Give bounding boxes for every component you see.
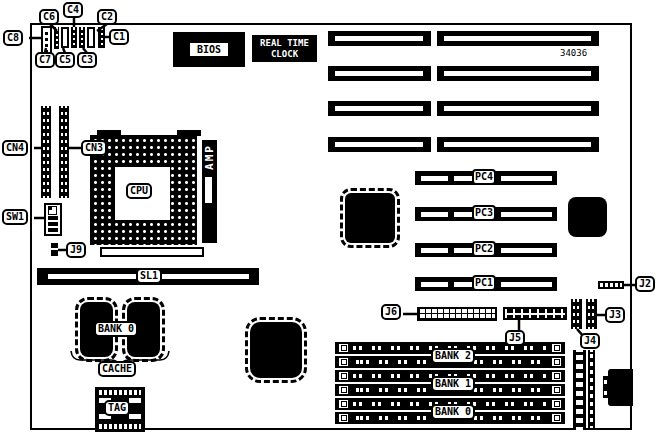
isa-slot xyxy=(328,137,431,152)
tag-pin-row xyxy=(99,424,141,429)
c5-label: C5 xyxy=(55,52,75,68)
pci-slot-key xyxy=(421,248,448,253)
j6-pins xyxy=(419,309,495,319)
pci-slot-key xyxy=(501,282,552,287)
simm-clip xyxy=(552,386,561,394)
c8-label: C8 xyxy=(3,30,23,46)
j5-label: J5 xyxy=(505,330,525,346)
simm-clip xyxy=(339,386,348,394)
simm-clip xyxy=(552,344,561,352)
sw1-actuator xyxy=(48,206,57,215)
c7-label: C7 xyxy=(35,52,55,68)
part-number: 34036 xyxy=(560,48,587,58)
isa-slot xyxy=(437,101,599,116)
rtc-label-line2: CLOCK xyxy=(252,49,317,60)
isa-slot-stripe xyxy=(444,106,591,111)
tag-pad xyxy=(129,398,141,403)
cn3-connector xyxy=(59,106,69,198)
capacitor-component xyxy=(71,27,77,48)
capacitor-component xyxy=(79,27,85,48)
cpu-label: CPU xyxy=(126,183,152,199)
j4-power-connector xyxy=(588,350,595,428)
j6-connector xyxy=(417,307,497,321)
isa-slot xyxy=(328,31,431,46)
simm-clip xyxy=(552,358,561,366)
sw1-dip-switch xyxy=(44,203,62,236)
bios-chip: BIOS xyxy=(173,32,245,67)
pci-slot-key xyxy=(501,176,552,181)
isa-slot-stripe xyxy=(444,71,591,76)
amp-regulator: AMP xyxy=(202,140,217,243)
sw1-label: SW1 xyxy=(2,209,28,225)
cn4-label: CN4 xyxy=(2,140,28,156)
pc1-label: PC1 xyxy=(472,275,496,291)
chipset-chip xyxy=(345,193,395,243)
capacitor-component xyxy=(54,27,59,49)
pci-slot-key xyxy=(421,282,448,287)
simm-clip xyxy=(339,400,348,408)
pci-slot-key xyxy=(454,248,474,253)
sl1-label: SL1 xyxy=(136,268,162,284)
memory-bank1-label: BANK 1 xyxy=(431,376,475,392)
sw1-segment xyxy=(48,222,58,226)
motherboard-diagram: 34036 BIOS REAL TIME CLOCK CPU AMP SL1 xyxy=(0,0,659,438)
cn3-label: CN3 xyxy=(81,140,107,156)
real-time-clock-chip: REAL TIME CLOCK xyxy=(252,35,317,62)
memory-bank0-label: BANK 0 xyxy=(431,404,475,420)
pci-slot-key xyxy=(454,282,474,287)
keyboard-din-connector xyxy=(603,369,633,406)
tag-pin-row xyxy=(99,390,141,395)
din-pin xyxy=(604,380,607,384)
isa-slot xyxy=(328,101,431,116)
j5-connector xyxy=(503,307,567,320)
cache-label: CACHE xyxy=(98,361,136,377)
pc2-label: PC2 xyxy=(472,241,496,257)
isa-slot xyxy=(437,66,599,81)
j3-label: J3 xyxy=(605,307,625,323)
pci-slot-key xyxy=(501,212,552,217)
cpu-socket-lever xyxy=(100,247,204,257)
sw1-segment xyxy=(48,216,58,220)
pci-slot-pc2: PC2 xyxy=(415,243,557,257)
isa-slot-stripe xyxy=(444,36,591,41)
capacitor-component xyxy=(98,27,105,48)
j5-pins xyxy=(505,309,565,318)
pci-slot-pc3: PC3 xyxy=(415,207,557,221)
rtc-label-line1: REAL TIME xyxy=(252,38,317,49)
isa-slot xyxy=(437,137,599,152)
j6-label: J6 xyxy=(381,304,401,320)
capacitor-component xyxy=(61,27,69,48)
c6-label: C6 xyxy=(39,9,59,25)
c1-label: C1 xyxy=(109,29,129,45)
tag-pad xyxy=(129,414,141,419)
isa-slot-stripe xyxy=(335,71,423,76)
simm-clip xyxy=(339,414,348,422)
simm-clip xyxy=(552,372,561,380)
simm-clip xyxy=(339,358,348,366)
cache-bank-label: BANK 0 xyxy=(94,321,138,337)
pci-slot-key xyxy=(501,248,552,253)
isa-slot xyxy=(437,31,599,46)
simm-clip xyxy=(339,372,348,380)
pci-slot-pc4: PC4 xyxy=(415,171,557,185)
capacitor-component xyxy=(87,27,95,48)
j9-jumper xyxy=(51,243,58,256)
tag-label: TAG xyxy=(104,400,130,416)
simm-clip xyxy=(552,400,561,408)
j4-power-connector xyxy=(573,350,586,430)
j2-label: J2 xyxy=(635,276,655,292)
pc3-label: PC3 xyxy=(472,205,496,221)
isa-slot-stripe xyxy=(444,142,591,147)
isa-slot-stripe xyxy=(335,36,423,41)
bios-chip-label: BIOS xyxy=(190,43,228,56)
pci-slot-key xyxy=(454,212,474,217)
c2-label: C2 xyxy=(97,9,117,25)
memory-bank2-label: BANK 2 xyxy=(431,348,475,364)
io-chip xyxy=(568,197,607,237)
j4-label: J4 xyxy=(580,333,600,349)
din-pin xyxy=(604,391,607,395)
c4-label: C4 xyxy=(63,2,83,18)
j3-connector xyxy=(586,299,597,329)
pci-slot-key xyxy=(454,176,474,181)
din-body xyxy=(608,369,633,406)
cn4-connector xyxy=(41,106,51,198)
pci-slot-pc1: PC1 xyxy=(415,277,557,291)
c3-label: C3 xyxy=(77,52,97,68)
controller-chip xyxy=(250,322,302,378)
sw1-segment xyxy=(48,228,58,232)
j9-label: J9 xyxy=(66,242,86,258)
isa-slot-stripe xyxy=(335,106,423,111)
pc4-label: PC4 xyxy=(472,169,496,185)
amp-label: AMP xyxy=(203,144,216,170)
isa-slot xyxy=(328,66,431,81)
isa-slot-stripe xyxy=(335,142,423,147)
j3-connector xyxy=(571,299,582,329)
amp-slot xyxy=(205,177,212,203)
simm-clip xyxy=(339,344,348,352)
pci-slot-key xyxy=(421,212,448,217)
pci-slot-key xyxy=(421,176,448,181)
capacitor-component xyxy=(41,26,52,55)
j2-connector xyxy=(598,281,624,289)
simm-clip xyxy=(552,414,561,422)
